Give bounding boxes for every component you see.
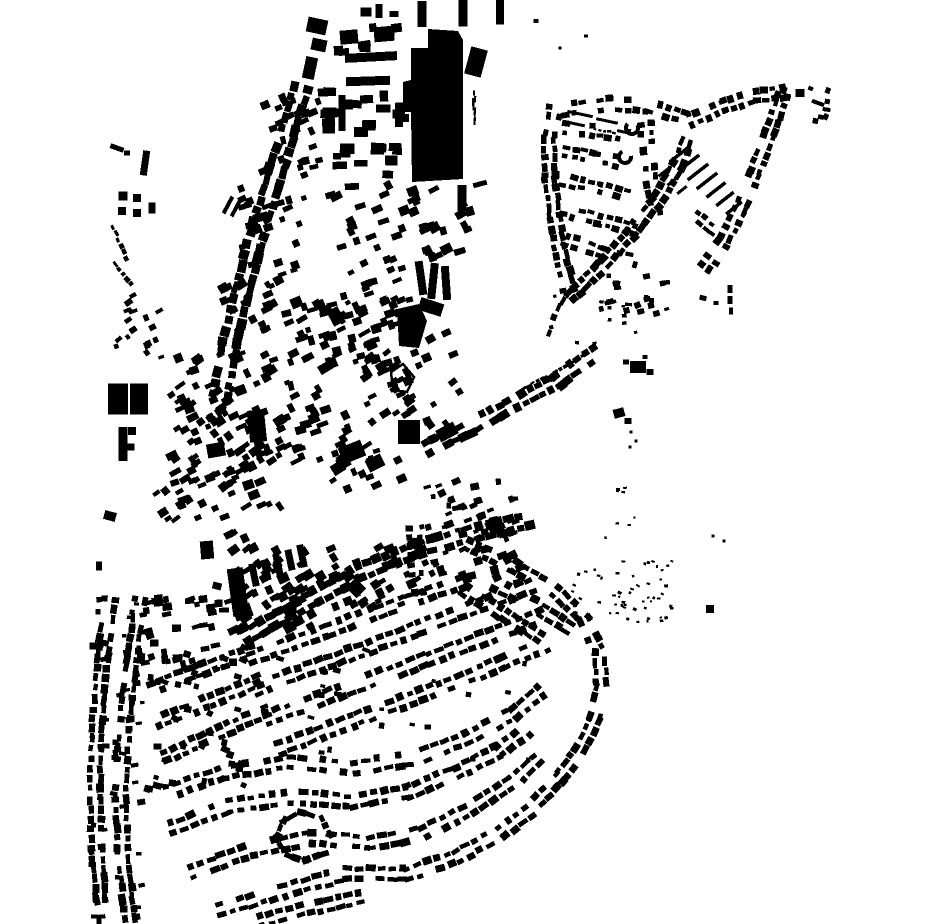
building-footprint [204, 381, 215, 389]
building-footprint [297, 754, 308, 762]
building-footprint [609, 612, 612, 615]
building-footprint [170, 478, 180, 487]
building-footprint [196, 859, 205, 867]
building-footprint [258, 183, 269, 196]
building-footprint [284, 852, 294, 860]
building-footprint [242, 479, 255, 491]
building-footprint [388, 608, 398, 616]
building-footprint [446, 502, 451, 508]
building-footprint [214, 687, 225, 697]
building-footprint [92, 884, 99, 893]
building-footprint [213, 722, 223, 732]
building-footprint [637, 122, 645, 129]
building-footprint [647, 561, 651, 564]
building-footprint [152, 489, 161, 497]
building-footprint [209, 428, 219, 438]
building-footprint [96, 562, 102, 571]
building-footprint [562, 120, 571, 127]
building-footprint [260, 350, 270, 360]
building-footprint [497, 590, 508, 598]
building-footprint [127, 736, 132, 743]
building-footprint [155, 307, 164, 314]
building-footprint [303, 694, 313, 703]
building-footprint [298, 631, 306, 637]
building-footprint [294, 424, 307, 435]
building-footprint [424, 614, 432, 621]
building-footprint [426, 546, 437, 554]
building-footprint [217, 336, 227, 346]
building-footprint [142, 314, 149, 322]
building-footprint [544, 647, 552, 654]
building-footprint [158, 354, 165, 359]
building-footprint [319, 340, 330, 351]
building-footprint [93, 683, 98, 690]
building-footprint [187, 734, 196, 743]
building-footprint [89, 723, 96, 732]
building-footprint [197, 693, 206, 702]
building-footprint [395, 751, 402, 759]
building-footprint [563, 258, 572, 267]
building-footprint [445, 511, 452, 517]
building-footprint [546, 329, 552, 337]
building-footprint [697, 118, 704, 125]
building-footprint [664, 616, 668, 620]
building-footprint [126, 854, 131, 864]
building-footprint [335, 616, 343, 625]
building-footprint [344, 794, 351, 799]
building-footprint [333, 683, 342, 692]
building-footprint [464, 667, 473, 675]
building-footprint [450, 734, 459, 742]
building-footprint [465, 692, 471, 698]
building-footprint [495, 478, 501, 485]
building-footprint [117, 716, 125, 723]
building-footprint [333, 649, 344, 658]
building-footprint [174, 381, 185, 391]
building-footprint [307, 737, 318, 745]
building-footprint [291, 844, 301, 851]
building-footprint [193, 708, 201, 717]
building-footprint [174, 681, 181, 688]
building-footprint [713, 110, 721, 118]
building-footprint [234, 384, 248, 397]
building-footprint [824, 99, 830, 105]
building-footprint [538, 573, 548, 582]
building-footprint [211, 504, 219, 512]
building-footprint [88, 785, 93, 791]
building-footprint [105, 718, 109, 722]
building-footprint [647, 120, 654, 126]
building-footprint [159, 685, 167, 694]
building-footprint [272, 673, 280, 680]
building-footprint [715, 191, 734, 207]
building-footprint [95, 609, 100, 615]
building-footprint [522, 661, 527, 667]
building-footprint [112, 784, 120, 792]
building-footprint [124, 756, 132, 765]
building-footprint [593, 658, 597, 668]
building-footprint [630, 431, 633, 434]
building-footprint [248, 658, 258, 667]
building-footprint [206, 856, 216, 863]
building-footprint [390, 785, 401, 792]
building-footprint [407, 691, 414, 697]
building-footprint [331, 562, 340, 571]
building-footprint [138, 883, 145, 888]
building-footprint [200, 817, 208, 825]
building-footprint [423, 832, 432, 841]
building-footprint [548, 592, 556, 600]
building-footprint [219, 325, 231, 337]
building-footprint [286, 745, 297, 753]
building-footprint [453, 743, 463, 751]
building-footprint [227, 490, 236, 498]
building-footprint [374, 143, 386, 153]
building-footprint [114, 230, 120, 237]
building-footprint [346, 712, 354, 719]
building-footprint [541, 154, 549, 161]
building-footprint [461, 757, 471, 765]
building-footprint [448, 377, 458, 387]
building-footprint [625, 108, 632, 113]
building-footprint [202, 769, 213, 777]
building-footprint [94, 664, 102, 672]
building-footprint [229, 908, 236, 914]
building-footprint [368, 798, 380, 807]
building-footprint [429, 741, 439, 748]
building-footprint [588, 241, 596, 248]
building-footprint [424, 333, 436, 344]
building-footprint [287, 358, 294, 367]
building-footprint [287, 136, 298, 149]
building-footprint [614, 184, 624, 193]
building-footprint [260, 655, 271, 663]
building-footprint [318, 814, 325, 822]
building-footprint [128, 883, 137, 892]
building-footprint [405, 296, 413, 303]
building-footprint [369, 615, 378, 624]
building-footprint [281, 666, 292, 676]
building-footprint [437, 590, 447, 598]
building-footprint [354, 875, 363, 882]
building-footprint [524, 688, 535, 698]
building-footprint [215, 901, 224, 908]
building-footprint [822, 107, 830, 112]
building-footprint [618, 595, 621, 598]
building-footprint [101, 674, 109, 683]
building-footprint [179, 826, 189, 834]
building-footprint [227, 543, 241, 556]
building-footprint [373, 244, 381, 252]
building-footprint [374, 665, 384, 675]
building-footprint [275, 451, 283, 459]
building-footprint [194, 514, 202, 522]
building-footprint [88, 745, 93, 752]
building-footprint [243, 677, 251, 685]
building-footprint [779, 87, 787, 94]
building-footprint [643, 562, 646, 565]
building-footprint [112, 815, 120, 824]
building-footprint [173, 352, 184, 363]
building-footprint [501, 735, 509, 743]
building-footprint [190, 427, 199, 436]
building-footprint [644, 189, 652, 199]
building-footprint [131, 595, 138, 602]
building-footprint [395, 762, 406, 771]
building-footprint [112, 749, 118, 755]
building-footprint [584, 570, 588, 573]
building-footprint [527, 812, 537, 822]
building-footprint [386, 266, 395, 274]
building-footprint [358, 653, 365, 659]
building-footprint [231, 857, 240, 865]
building-footprint [664, 584, 668, 587]
building-footprint [415, 651, 426, 659]
industrial-works [403, 29, 463, 182]
building-footprint [97, 765, 103, 773]
building-footprint [356, 899, 365, 905]
building-footprint [429, 692, 437, 700]
building-footprint [474, 118, 476, 125]
building-footprint [216, 911, 227, 919]
building-footprint [524, 654, 532, 662]
building-footprint [660, 592, 664, 595]
building-footprint [416, 629, 427, 638]
building-footprint [223, 431, 234, 442]
building-footprint [485, 758, 496, 767]
building-footprint [254, 476, 267, 487]
building-footprint [228, 371, 236, 379]
building-footprint [88, 714, 95, 722]
building-footprint [256, 645, 264, 652]
building-footprint [579, 176, 586, 184]
building-footprint [215, 666, 221, 671]
building-footprint [473, 628, 484, 638]
map-viewport [0, 0, 930, 924]
building-footprint [687, 163, 710, 182]
building-footprint [611, 163, 619, 171]
building-footprint [538, 784, 547, 793]
building-footprint [469, 610, 477, 617]
building-footprint [354, 160, 368, 167]
building-footprint [496, 724, 505, 732]
building-footprint [152, 336, 159, 343]
building-footprint [352, 844, 360, 849]
building-footprint [184, 809, 196, 820]
building-footprint [577, 276, 585, 284]
building-footprint [385, 630, 394, 637]
building-footprint [342, 643, 352, 653]
building-footprint [123, 794, 130, 805]
building-footprint [306, 17, 329, 36]
building-footprint [456, 539, 464, 547]
building-footprint [128, 895, 135, 905]
building-footprint [208, 395, 218, 404]
building-footprint [659, 280, 665, 286]
building-footprint [236, 794, 245, 802]
building-footprint [613, 407, 626, 419]
building-footprint [332, 759, 339, 764]
building-footprint [558, 231, 566, 242]
building-footprint [375, 876, 384, 881]
building-footprint [648, 139, 655, 145]
building-footprint [379, 722, 385, 729]
building-footprint [306, 909, 313, 915]
building-footprint [615, 135, 621, 142]
building-footprint [604, 667, 609, 675]
building-footprint [136, 634, 141, 642]
building-footprint [392, 277, 403, 285]
building-footprint [319, 801, 329, 808]
building-footprint [175, 488, 184, 496]
building-footprint [347, 269, 355, 276]
building-footprint [145, 680, 156, 689]
building-footprint [566, 265, 576, 276]
building-footprint [210, 813, 218, 821]
building-footprint [384, 697, 395, 706]
building-footprint [551, 244, 558, 252]
building-footprint [612, 131, 616, 134]
building-footprint [734, 219, 743, 228]
building-footprint [91, 823, 97, 828]
building-footprint [207, 657, 218, 665]
building-footprint [269, 790, 276, 798]
building-footprint [443, 641, 454, 649]
building-footprint [319, 755, 327, 763]
building-footprint [520, 803, 529, 812]
building-footprint [751, 181, 760, 189]
building-footprint [451, 847, 461, 856]
building-footprint [705, 114, 713, 123]
building-footprint [125, 835, 130, 841]
building-footprint [186, 863, 194, 871]
building-footprint [535, 758, 545, 768]
building-footprint [213, 765, 222, 773]
building-footprint [606, 214, 614, 220]
building-footprint [97, 622, 104, 633]
building-footprint [647, 302, 654, 309]
building-footprint [496, 0, 504, 25]
building-footprint [128, 623, 135, 633]
building-footprint [504, 816, 513, 825]
building-footprint [354, 202, 366, 211]
building-footprint [302, 56, 318, 80]
building-footprint [725, 234, 733, 244]
building-footprint [395, 692, 405, 702]
building-footprint [425, 448, 436, 459]
building-footprint [123, 663, 130, 673]
building-footprint [225, 797, 233, 803]
building-footprint [551, 163, 558, 172]
building-footprint [387, 877, 397, 882]
building-footprint [93, 673, 99, 681]
building-footprint [390, 840, 401, 848]
building-footprint [532, 635, 542, 645]
building-footprint [183, 650, 192, 658]
building-footprint [316, 456, 324, 464]
building-footprint [250, 805, 256, 810]
building-footprint [470, 837, 479, 845]
building-footprint [98, 734, 104, 743]
building-footprint [517, 525, 525, 532]
building-footprint [419, 570, 424, 576]
building-footprint [366, 834, 376, 841]
building-footprint [325, 718, 334, 728]
building-footprint [378, 190, 390, 199]
building-footprint [168, 779, 176, 787]
building-footprint [647, 597, 650, 599]
building-footprint [632, 607, 637, 611]
building-footprint [611, 192, 621, 201]
building-footprint [185, 598, 195, 604]
building-footprint [632, 261, 638, 269]
building-footprint [136, 852, 142, 855]
building-footprint [544, 791, 555, 802]
building-footprint [443, 748, 451, 755]
building-footprint [560, 112, 569, 119]
building-footprint [101, 705, 106, 713]
building-footprint [541, 135, 546, 144]
building-footprint [275, 716, 283, 723]
building-footprint [418, 744, 429, 752]
building-footprint [307, 829, 317, 837]
building-footprint [595, 151, 601, 157]
building-footprint [473, 91, 475, 96]
building-footprint [392, 409, 401, 417]
building-footprint [118, 207, 126, 215]
building-footprint [222, 719, 230, 727]
building-footprint [596, 133, 603, 138]
building-footprint [236, 767, 244, 772]
building-footprint [621, 560, 625, 563]
building-footprint [376, 578, 387, 587]
building-footprint [373, 754, 379, 762]
building-footprint [285, 712, 293, 719]
building-footprint [164, 720, 172, 726]
building-footprint [169, 467, 182, 478]
building-footprint [96, 644, 101, 654]
building-footprint [100, 696, 107, 707]
building-footprint [643, 273, 651, 280]
building-footprint [470, 482, 480, 491]
building-footprint [269, 921, 276, 924]
building-footprint [352, 770, 360, 777]
building-footprint [369, 716, 378, 723]
building-footprint [193, 683, 199, 690]
building-footprint [228, 649, 236, 656]
building-footprint [237, 259, 248, 273]
building-footprint [409, 723, 415, 727]
building-footprint [133, 913, 141, 920]
building-footprint [437, 488, 447, 498]
building-footprint [598, 306, 604, 312]
building-footprint [632, 106, 641, 114]
building-footprint [723, 540, 726, 543]
building-footprint [89, 707, 97, 713]
building-footprint [572, 147, 580, 154]
building-footprint [241, 453, 250, 462]
building-footprint [319, 733, 328, 743]
building-footprint [118, 705, 123, 711]
building-footprint [127, 873, 134, 884]
building-footprint [161, 648, 168, 656]
building-footprint [505, 742, 517, 754]
building-footprint [339, 29, 358, 45]
building-footprint [286, 765, 293, 770]
building-footprint [293, 664, 302, 673]
building-footprint [760, 86, 769, 94]
building-footprint [353, 708, 363, 716]
